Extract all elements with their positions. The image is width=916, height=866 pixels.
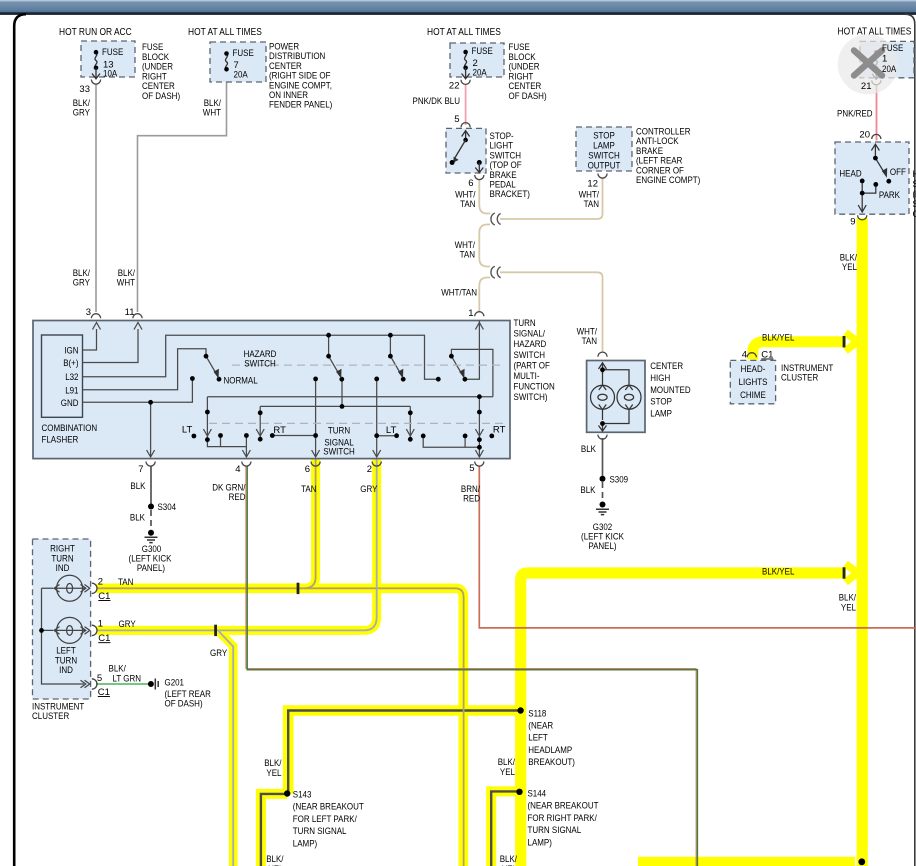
svg-text:CHIME: CHIME [740,390,766,401]
svg-text:CENTER: CENTER [650,361,683,372]
svg-text:22: 22 [449,81,460,92]
svg-text:C1: C1 [761,350,773,361]
svg-text:C1: C1 [98,687,110,698]
svg-text:OF DASH): OF DASH) [509,91,547,102]
svg-text:20A: 20A [234,70,249,81]
svg-text:OUTPUT: OUTPUT [588,160,621,171]
svg-text:OF DASH): OF DASH) [142,91,180,102]
svg-text:9: 9 [850,217,855,228]
svg-text:COMBINATION: COMBINATION [42,423,98,434]
svg-text:S143: S143 [293,790,312,801]
svg-text:STOP: STOP [650,397,672,408]
svg-text:RED: RED [229,492,246,503]
svg-text:20A: 20A [882,64,897,75]
svg-text:10A: 10A [103,69,118,80]
svg-text:LAMP): LAMP) [293,838,317,849]
svg-text:FOR LEFT PARK/: FOR LEFT PARK/ [293,814,357,825]
svg-text:BLK: BLK [581,444,597,455]
svg-text:(NEAR: (NEAR [528,721,553,732]
svg-text:GRY: GRY [73,108,91,119]
svg-text:HEADLAMP: HEADLAMP [528,745,572,756]
svg-text:SWITCH): SWITCH) [514,392,548,403]
svg-text:BLK: BLK [130,513,146,524]
svg-text:YEL: YEL [842,262,857,273]
svg-text:TURN: TURN [514,318,536,329]
svg-text:L32: L32 [65,372,78,383]
svg-text:WHT: WHT [203,108,221,119]
svg-text:LT: LT [182,425,193,436]
svg-text:OFF: OFF [890,167,906,178]
svg-text:SWITCH: SWITCH [323,447,355,458]
svg-text:(NEAR BREAKOUT: (NEAR BREAKOUT [528,801,599,812]
svg-text:1: 1 [98,619,103,630]
svg-text:C1: C1 [98,591,110,602]
svg-text:GRY: GRY [119,619,137,630]
svg-text:FUNCTION: FUNCTION [514,382,555,393]
svg-text:TURN: TURN [328,426,350,437]
svg-text:HIGH: HIGH [650,373,670,384]
svg-text:TAN: TAN [582,336,598,347]
svg-text:HEAD-: HEAD- [741,364,766,375]
svg-text:ENGINE COMPT): ENGINE COMPT) [636,175,700,186]
svg-text:HOT RUN OR ACC: HOT RUN OR ACC [59,27,132,38]
svg-text:NORMAL: NORMAL [224,376,258,387]
svg-text:LIGHTS: LIGHTS [739,377,768,388]
svg-text:20: 20 [859,130,870,141]
svg-text:YEL: YEL [500,767,515,778]
svg-text:HOT AT ALL TIMES: HOT AT ALL TIMES [838,27,912,38]
svg-text:BLK/YEL: BLK/YEL [762,332,794,343]
svg-text:SWITCH: SWITCH [244,359,276,370]
svg-text:LAMP): LAMP) [528,837,552,848]
svg-text:B(+): B(+) [63,358,78,369]
svg-text:RT: RT [273,425,286,436]
svg-text:IND: IND [59,665,73,676]
svg-text:20A: 20A [473,68,488,79]
svg-text:21: 21 [861,81,872,92]
svg-text:TAN: TAN [584,199,600,210]
svg-text:YEL: YEL [266,768,281,779]
svg-text:BREAKOUT): BREAKOUT) [528,757,575,768]
svg-text:S144: S144 [528,789,547,800]
svg-text:BLK/YEL: BLK/YEL [762,567,794,578]
svg-text:TURN SIGNAL: TURN SIGNAL [293,826,347,837]
svg-text:LEFT: LEFT [528,733,548,744]
svg-text:LAMP: LAMP [650,409,672,420]
svg-text:HAZARD: HAZARD [514,339,547,350]
svg-text:OF DASH): OF DASH) [165,699,203,710]
svg-text:GRY: GRY [210,648,228,659]
svg-text:6: 6 [305,464,310,475]
svg-text:4: 4 [742,349,747,360]
svg-text:LT: LT [386,425,397,436]
svg-text:HOT AT ALL TIMES: HOT AT ALL TIMES [427,27,501,38]
svg-text:TURN SIGNAL: TURN SIGNAL [528,825,582,836]
svg-text:GRY: GRY [360,484,378,495]
svg-text:2: 2 [98,577,103,588]
svg-text:1: 1 [468,308,473,319]
svg-text:(NEAR BREAKOUT: (NEAR BREAKOUT [293,802,364,813]
svg-text:OF: OF [913,209,916,220]
svg-text:FUSE: FUSE [882,43,903,54]
svg-text:MOUNTED: MOUNTED [650,385,690,396]
svg-text:RT: RT [493,425,506,436]
svg-text:LT GRN: LT GRN [113,674,142,685]
svg-text:S304: S304 [158,502,177,513]
svg-text:PARK: PARK [879,190,901,201]
svg-text:TAN: TAN [460,199,476,210]
svg-text:WHT: WHT [117,278,135,289]
svg-text:11: 11 [125,307,135,318]
svg-text:FOR RIGHT PARK/: FOR RIGHT PARK/ [528,813,598,824]
svg-text:FUSE: FUSE [233,48,254,59]
svg-text:PANEL): PANEL) [588,541,616,552]
svg-text:SWITCH: SWITCH [514,350,546,361]
svg-text:WHT/TAN: WHT/TAN [441,288,477,299]
svg-text:FENDER PANEL): FENDER PANEL) [269,100,332,111]
svg-text:IND: IND [56,563,70,574]
svg-text:5: 5 [454,114,459,125]
svg-text:6: 6 [468,178,473,189]
svg-text:G201: G201 [165,678,185,689]
svg-text:(PART OF: (PART OF [514,360,551,371]
svg-text:YEL: YEL [841,603,856,614]
svg-text:12: 12 [587,179,598,190]
svg-text:CLUSTER: CLUSTER [32,711,69,722]
svg-text:TAN: TAN [118,577,134,588]
svg-text:IGN: IGN [64,346,78,357]
svg-text:MULTI-: MULTI- [514,371,540,382]
svg-text:BLK: BLK [130,481,146,492]
svg-text:HEAD: HEAD [839,169,861,180]
svg-text:1: 1 [882,54,887,65]
svg-text:PNK/DK BLU: PNK/DK BLU [413,96,461,107]
svg-text:RED: RED [463,494,480,505]
svg-text:PNK/RED: PNK/RED [837,109,873,120]
svg-text:4: 4 [235,464,240,475]
svg-text:BRACKET): BRACKET) [490,189,530,200]
svg-text:3: 3 [86,307,91,318]
svg-text:FLASHER: FLASHER [42,435,79,446]
svg-text:C1: C1 [98,633,110,644]
svg-text:FUSE: FUSE [102,47,123,58]
svg-text:PANEL): PANEL) [137,563,165,574]
svg-text:S118: S118 [528,709,546,720]
svg-text:GRY: GRY [73,278,91,289]
svg-text:5: 5 [97,673,102,684]
svg-text:2: 2 [367,464,372,475]
svg-text:33: 33 [79,84,90,95]
svg-text:SIGNAL/: SIGNAL/ [514,329,546,340]
svg-text:7: 7 [138,464,143,475]
svg-text:CLUSTER: CLUSTER [781,372,818,383]
svg-text:GND: GND [61,398,79,409]
svg-text:FUSE: FUSE [472,46,493,57]
svg-text:HOT AT ALL TIMES: HOT AT ALL TIMES [188,27,262,38]
svg-text:S309: S309 [610,475,629,486]
svg-text:BLK: BLK [580,485,596,496]
svg-text:L91: L91 [65,385,78,396]
svg-text:TAN: TAN [460,250,476,261]
svg-text:5: 5 [469,463,474,474]
svg-text:TAN: TAN [301,484,317,495]
